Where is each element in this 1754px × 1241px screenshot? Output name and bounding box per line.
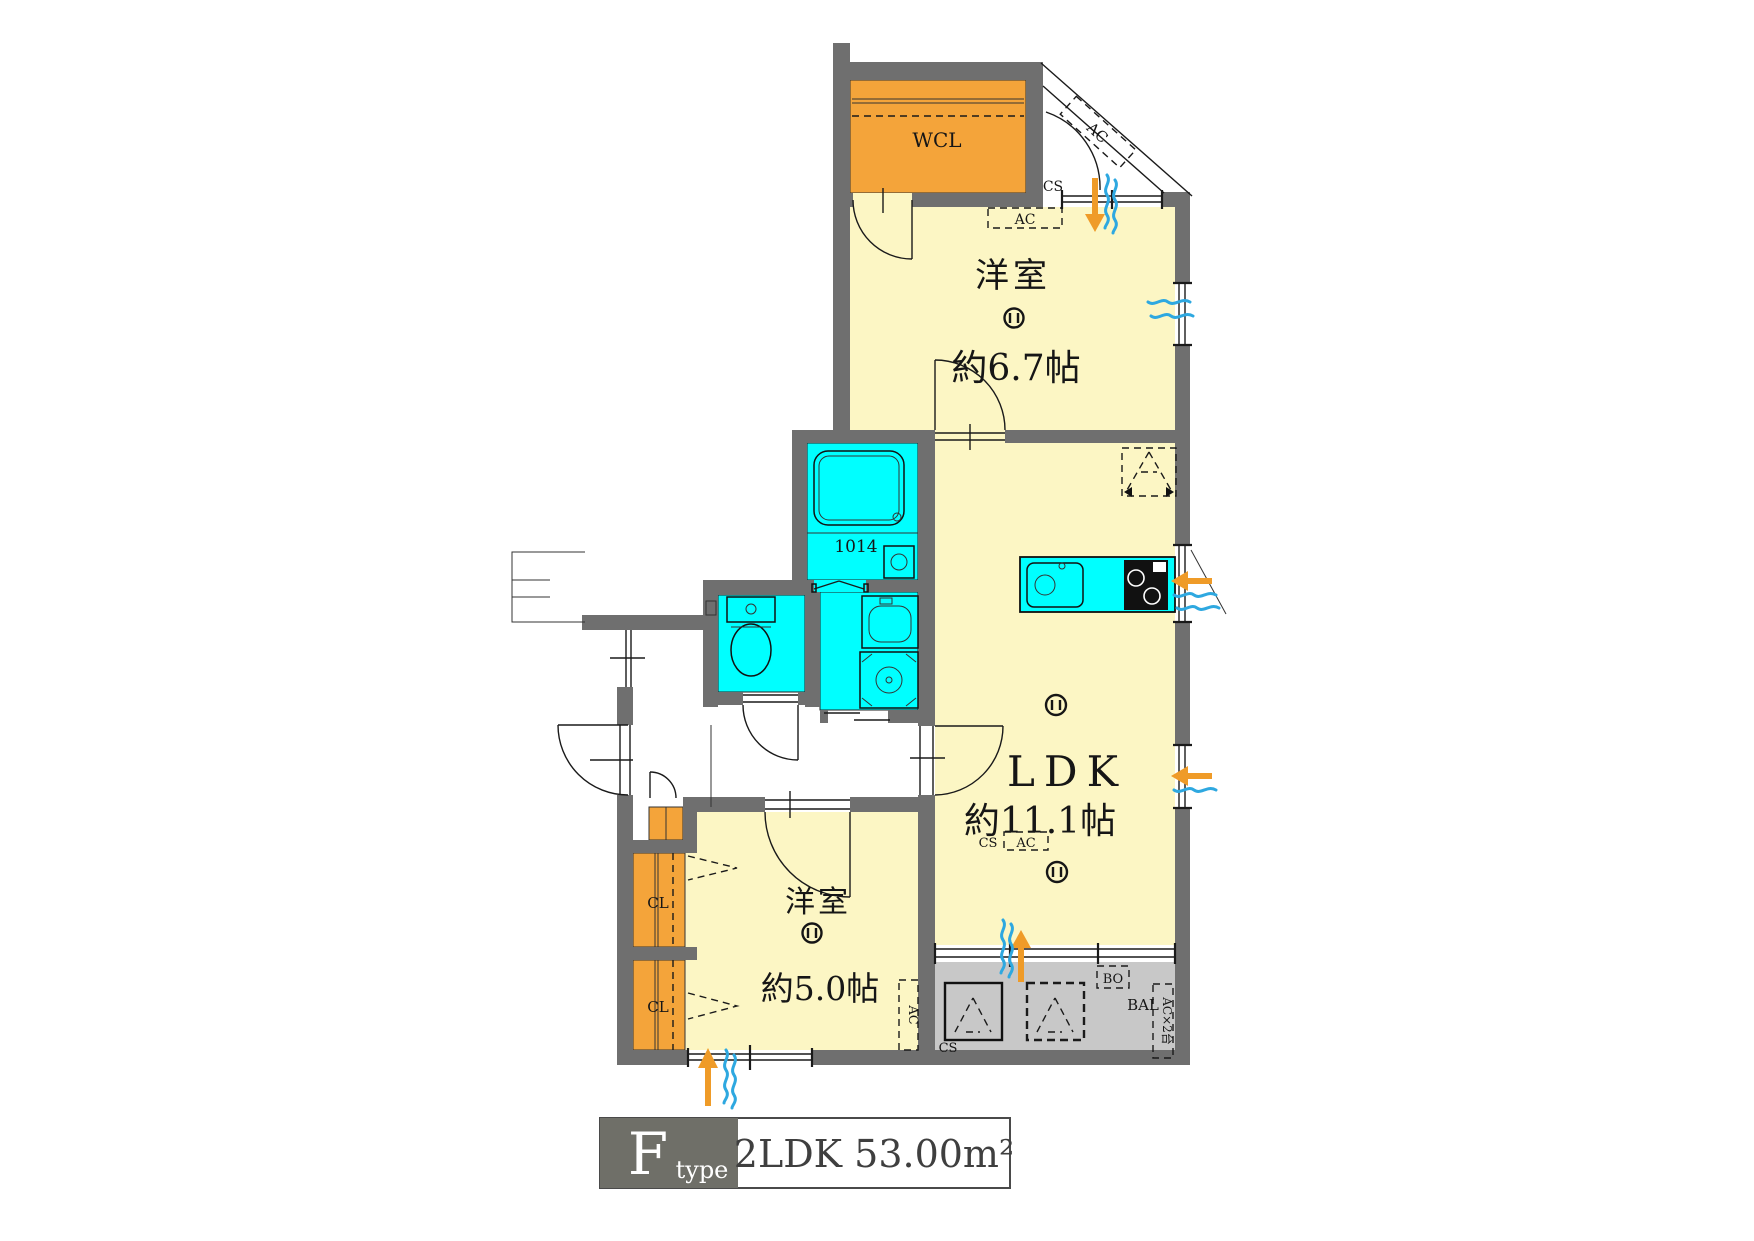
window-entrance (610, 630, 645, 687)
bedroom2-size: 約5.0帖 (761, 969, 879, 1008)
floor-plan-page: AC (0, 0, 1754, 1241)
bo-label: BO (1103, 972, 1123, 987)
title-spec: 2LDK 53.00m² (734, 1132, 1014, 1176)
stove (1124, 560, 1168, 610)
cs-balcony-label: CS (939, 1041, 958, 1056)
bedroom1-size: 約6.7帖 (951, 348, 1080, 389)
bedroom1-name: 洋室 (975, 256, 1051, 296)
title-block: F type 2LDK 53.00m² (600, 1118, 1014, 1188)
floor-plan-drawing: AC (0, 0, 1754, 1241)
ac-count-label: AC×2台 (1160, 996, 1175, 1045)
closet-lower-label: CL (647, 998, 668, 1016)
eave-corner: AC (1041, 63, 1192, 196)
door-toilet (743, 695, 798, 760)
cs-top-label: CS (1043, 179, 1063, 195)
door-entrance (558, 725, 633, 795)
balcony-label: BAL (1127, 996, 1159, 1014)
title-letter: F (628, 1120, 668, 1188)
bath-floor (807, 443, 918, 580)
window-top (1062, 190, 1162, 209)
bath-size-label: 1014 (834, 537, 877, 557)
bedroom2-name: 洋室 (785, 885, 851, 920)
cs-ldk-label: CS (979, 836, 998, 851)
kitchen-counter (1020, 557, 1175, 612)
door-bath-folding (812, 580, 868, 592)
closet-upper-label: CL (647, 894, 668, 912)
washroom-floor (820, 592, 918, 710)
title-suffix: type (676, 1156, 729, 1184)
wcl-label: WCL (912, 128, 961, 152)
ac-eave-box: AC (1060, 96, 1136, 167)
door-genkan-cabinet (650, 772, 676, 798)
entrance-porch (512, 552, 585, 622)
bedroom1-floor (850, 207, 1175, 430)
ac-ldk-label: AC (1015, 836, 1035, 851)
ac-bedroom2-label: AC (905, 1004, 920, 1024)
door-washroom-sliding (824, 713, 890, 720)
ldk-name: LDK (1007, 747, 1127, 796)
ac-bedroom1-label: AC (1014, 212, 1036, 228)
